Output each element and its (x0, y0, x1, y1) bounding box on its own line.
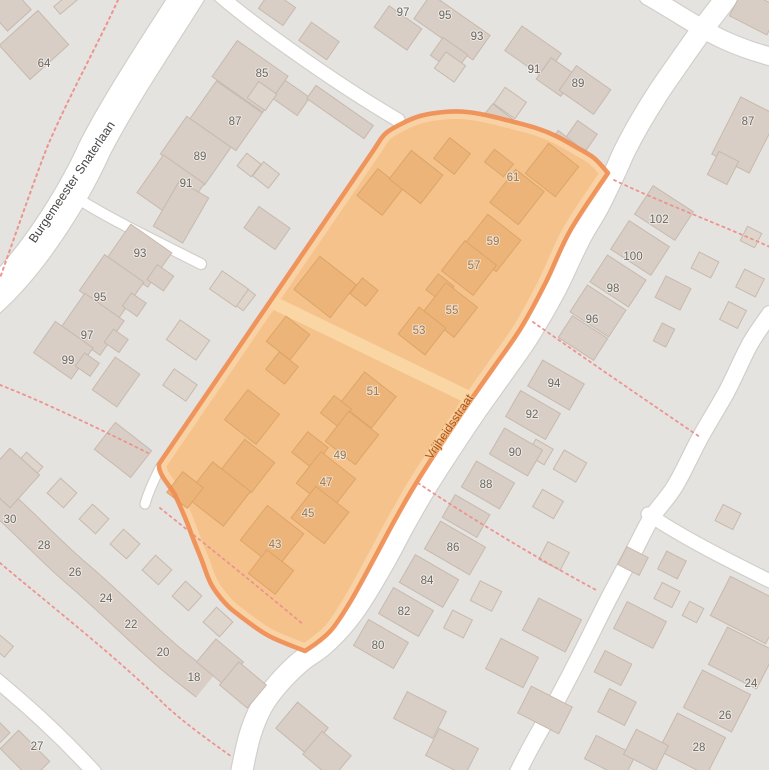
svg-text:57: 57 (468, 260, 481, 272)
svg-text:84: 84 (421, 575, 434, 587)
svg-text:24: 24 (745, 678, 758, 690)
svg-text:55: 55 (446, 305, 459, 317)
svg-text:53: 53 (413, 325, 426, 337)
svg-text:28: 28 (38, 540, 51, 552)
svg-text:85: 85 (256, 68, 269, 80)
svg-text:93: 93 (134, 248, 147, 260)
svg-text:95: 95 (94, 292, 107, 304)
svg-text:45: 45 (302, 508, 315, 520)
svg-text:86: 86 (447, 542, 460, 554)
svg-text:80: 80 (372, 640, 385, 652)
svg-text:51: 51 (367, 386, 380, 398)
svg-text:18: 18 (188, 672, 201, 684)
svg-text:97: 97 (81, 330, 94, 342)
svg-text:30: 30 (4, 514, 17, 526)
svg-text:26: 26 (69, 567, 82, 579)
svg-text:61: 61 (507, 172, 520, 184)
svg-text:26: 26 (719, 710, 732, 722)
svg-text:98: 98 (607, 283, 620, 295)
svg-text:91: 91 (180, 178, 193, 190)
svg-text:95: 95 (439, 10, 452, 22)
svg-text:88: 88 (480, 479, 493, 491)
svg-text:28: 28 (693, 742, 706, 754)
svg-text:47: 47 (320, 477, 333, 489)
svg-text:89: 89 (572, 78, 585, 90)
svg-text:87: 87 (229, 116, 242, 128)
svg-text:90: 90 (509, 447, 522, 459)
svg-text:87: 87 (742, 116, 755, 128)
svg-text:93: 93 (471, 31, 484, 43)
svg-text:27: 27 (31, 741, 44, 753)
svg-text:91: 91 (528, 64, 541, 76)
svg-text:102: 102 (649, 214, 668, 226)
svg-text:92: 92 (526, 409, 539, 421)
svg-text:94: 94 (548, 378, 561, 390)
svg-text:82: 82 (398, 606, 411, 618)
svg-text:64: 64 (38, 58, 51, 70)
svg-text:99: 99 (62, 355, 75, 367)
svg-text:97: 97 (397, 7, 410, 19)
svg-text:43: 43 (269, 539, 282, 551)
svg-text:49: 49 (334, 450, 347, 462)
svg-text:22: 22 (125, 619, 138, 631)
svg-text:20: 20 (157, 647, 170, 659)
svg-text:24: 24 (100, 593, 113, 605)
svg-text:100: 100 (623, 251, 642, 263)
svg-text:89: 89 (194, 151, 207, 163)
svg-text:96: 96 (586, 314, 599, 326)
svg-text:59: 59 (487, 236, 500, 248)
